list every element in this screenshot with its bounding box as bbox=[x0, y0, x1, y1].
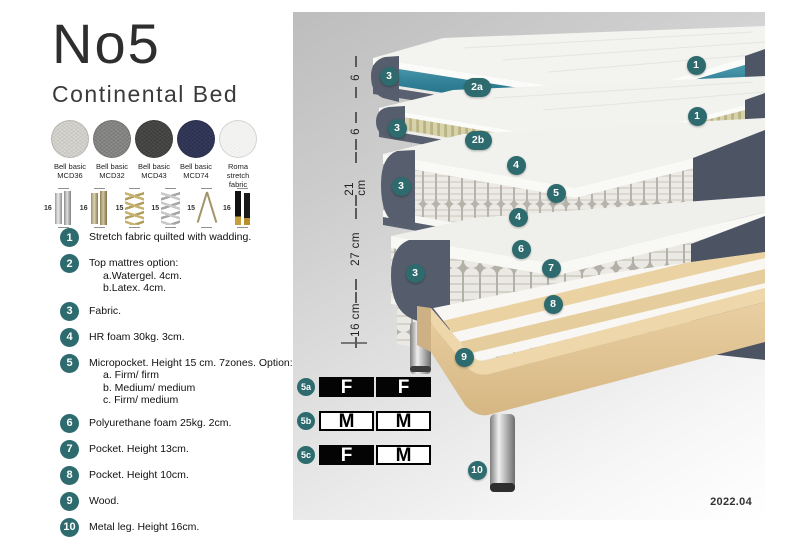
fabric-swatch-label: Bell basicMCD43 bbox=[134, 162, 174, 180]
fabric-swatch-circle bbox=[93, 120, 131, 158]
fabric-swatch-circle bbox=[135, 120, 173, 158]
fabric-swatch-name: Bell basic bbox=[134, 162, 174, 171]
legend-item: 8Pocket. Height 10cm. bbox=[60, 469, 293, 485]
leg-option: 16 bbox=[44, 186, 73, 230]
firmness-cell: F bbox=[319, 377, 374, 397]
callout-1: 1 bbox=[687, 56, 706, 75]
measure-dash bbox=[129, 227, 140, 228]
measure-dash bbox=[165, 227, 176, 228]
twist-gold-leg-icon bbox=[125, 191, 144, 225]
firmness-cell: M bbox=[376, 445, 431, 465]
fabric-swatch-name: Bell basic bbox=[92, 162, 132, 171]
firmness-cells: FM bbox=[319, 445, 431, 465]
dimension-segment: 6 bbox=[345, 112, 367, 150]
measure-dash bbox=[94, 227, 105, 228]
dimension-label: 6 bbox=[350, 74, 362, 81]
fabric-swatch-circle bbox=[177, 120, 215, 158]
callout-3: 3 bbox=[380, 67, 399, 86]
legend-line: Pocket. Height 13cm. bbox=[89, 443, 189, 456]
leg-option: 15 bbox=[116, 186, 145, 230]
legend-line: HR foam 30kg. 3cm. bbox=[89, 331, 185, 344]
product-subtitle: Continental Bed bbox=[52, 81, 238, 108]
legend-line: b.Latex. 4cm. bbox=[103, 282, 182, 295]
cylinder-silver-leg-icon bbox=[54, 191, 73, 225]
legend-text: Metal leg. Height 16cm. bbox=[89, 521, 199, 537]
dimension-segment: 27 cm bbox=[345, 208, 367, 290]
callout-3: 3 bbox=[406, 264, 425, 283]
legend-line: Wood. bbox=[89, 495, 119, 508]
firmness-row: 5bMM bbox=[297, 411, 431, 431]
callout-4: 4 bbox=[509, 208, 528, 227]
ruler-tick bbox=[355, 112, 357, 123]
ruler-tick bbox=[355, 279, 357, 290]
callout-1: 1 bbox=[688, 107, 707, 126]
fabric-swatch-code: MCD43 bbox=[134, 171, 174, 180]
legend-line: Fabric. bbox=[89, 305, 121, 318]
leg-option: 15 bbox=[151, 186, 180, 230]
legend-number: 1 bbox=[60, 228, 79, 247]
callout-10: 10 bbox=[468, 461, 487, 480]
leg-option: 16 bbox=[223, 186, 252, 230]
legend-text: HR foam 30kg. 3cm. bbox=[89, 331, 185, 347]
fabric-swatch-name: Bell basic bbox=[50, 162, 90, 171]
diagram-panel: 2022.04 12a312b3453467389106621 cm27 cm1… bbox=[293, 12, 765, 520]
fabric-swatch-code: MCD32 bbox=[92, 171, 132, 180]
firmness-row: 5cFM bbox=[297, 445, 431, 465]
legend-number: 9 bbox=[60, 492, 79, 511]
fabric-swatch-circle bbox=[51, 120, 89, 158]
legend-text: Pocket. Height 13cm. bbox=[89, 443, 189, 459]
brand-block: No5 Continental Bed bbox=[52, 16, 238, 108]
firmness-cell: M bbox=[376, 411, 431, 431]
legend-text: Wood. bbox=[89, 495, 119, 511]
version-label: 2022.04 bbox=[710, 496, 752, 508]
product-title: No5 bbox=[52, 16, 238, 72]
firmness-row-label: 5b bbox=[297, 412, 315, 430]
leg-figure bbox=[197, 186, 216, 230]
legend-line: Metal leg. Height 16cm. bbox=[89, 521, 199, 534]
measure-dash bbox=[237, 227, 248, 228]
block-black-leg-icon bbox=[233, 191, 252, 225]
callout-6: 6 bbox=[512, 240, 531, 259]
ruler-tick bbox=[355, 208, 357, 219]
legend-number: 5 bbox=[60, 354, 79, 373]
legend-text: Micropocket. Height 15 cm. 7zones. Optio… bbox=[89, 357, 293, 407]
legend-line: Micropocket. Height 15 cm. 7zones. Optio… bbox=[89, 357, 293, 370]
fabric-swatch: Bell basicMCD32 bbox=[92, 120, 132, 189]
legend-item: 6Polyurethane foam 25kg. 2cm. bbox=[60, 417, 293, 433]
legend-line: Pocket. Height 10cm. bbox=[89, 469, 189, 482]
firmness-cell: F bbox=[319, 445, 374, 465]
legend-item: 9Wood. bbox=[60, 495, 293, 511]
metal-leg-front bbox=[490, 414, 515, 492]
legend-line: c. Firm/ medium bbox=[103, 394, 293, 407]
legend-line: Top mattres option: bbox=[89, 257, 182, 270]
fabric-swatch-code: MCD36 bbox=[50, 171, 90, 180]
twist-silver-leg-icon bbox=[161, 191, 180, 225]
firmness-cell: F bbox=[376, 377, 431, 397]
measure-dash bbox=[201, 188, 212, 189]
measure-dash bbox=[237, 188, 248, 189]
ruler-tick bbox=[355, 337, 357, 348]
legend-text: Fabric. bbox=[89, 305, 121, 321]
ruler-tick bbox=[355, 292, 357, 303]
legend-list: 1Stretch fabric quilted with wadding.2To… bbox=[60, 231, 293, 547]
fabric-swatch-code: MCD74 bbox=[176, 171, 216, 180]
callout-9: 9 bbox=[455, 348, 474, 367]
leg-figure bbox=[90, 186, 109, 230]
callout-2b: 2b bbox=[465, 131, 492, 150]
legend-line: a. Firm/ firm bbox=[103, 369, 293, 382]
legend-line: Polyurethane foam 25kg. 2cm. bbox=[89, 417, 231, 430]
measure-dash bbox=[58, 188, 69, 189]
legend-item: 2Top mattres option:a.Watergel. 4cm.b.La… bbox=[60, 257, 293, 295]
callout-2a: 2a bbox=[464, 78, 491, 97]
dimension-label: 6 bbox=[350, 128, 362, 135]
legend-text: Top mattres option:a.Watergel. 4cm.b.Lat… bbox=[89, 257, 182, 295]
legend-item: 5Micropocket. Height 15 cm. 7zones. Opti… bbox=[60, 357, 293, 407]
legend-number: 10 bbox=[60, 518, 79, 537]
legend-number: 4 bbox=[60, 328, 79, 347]
firmness-cell: M bbox=[319, 411, 374, 431]
dimension-label: 21 cm bbox=[344, 163, 368, 196]
fabric-swatch-circle bbox=[219, 120, 257, 158]
legend-item: 1Stretch fabric quilted with wadding. bbox=[60, 231, 293, 247]
fabric-swatch: Bell basicMCD74 bbox=[176, 120, 216, 189]
fabric-swatch-name: Roma bbox=[218, 162, 258, 171]
legend-number: 2 bbox=[60, 254, 79, 273]
ruler-tick bbox=[355, 195, 357, 206]
info-column: No5 Continental Bed Bell basicMCD36Bell … bbox=[0, 0, 293, 533]
firmness-row-label: 5c bbox=[297, 446, 315, 464]
page: No5 Continental Bed Bell basicMCD36Bell … bbox=[0, 0, 800, 533]
cylinder-gold-leg-icon bbox=[90, 191, 109, 225]
ruler-tick bbox=[355, 139, 357, 150]
legend-item: 4HR foam 30kg. 3cm. bbox=[60, 331, 293, 347]
firmness-row-label: 5a bbox=[297, 378, 315, 396]
leg-figure bbox=[125, 186, 144, 230]
measure-dash bbox=[129, 188, 140, 189]
callout-3: 3 bbox=[392, 177, 411, 196]
measure-dash bbox=[165, 188, 176, 189]
fabric-swatch: Romastretch fabric bbox=[218, 120, 258, 189]
measure-dash bbox=[201, 227, 212, 228]
legend-item: 10Metal leg. Height 16cm. bbox=[60, 521, 293, 537]
fabric-swatch-label: Romastretch fabric bbox=[218, 162, 258, 189]
leg-height-label: 16 bbox=[80, 205, 88, 212]
ruler-tick bbox=[355, 152, 357, 163]
legend-text: Polyurethane foam 25kg. 2cm. bbox=[89, 417, 231, 433]
firmness-cells: FF bbox=[319, 377, 431, 397]
dimension-label: 16 cm bbox=[350, 303, 362, 337]
legend-number: 8 bbox=[60, 466, 79, 485]
callout-3: 3 bbox=[388, 119, 407, 138]
legend-item: 7Pocket. Height 13cm. bbox=[60, 443, 293, 459]
leg-figure bbox=[54, 186, 73, 230]
callout-4: 4 bbox=[507, 156, 526, 175]
fabric-swatch-name: Bell basic bbox=[176, 162, 216, 171]
leg-figure bbox=[233, 186, 252, 230]
callout-8: 8 bbox=[544, 295, 563, 314]
leg-height-label: 15 bbox=[116, 205, 124, 212]
hairpin-leg-icon bbox=[197, 191, 216, 225]
legend-number: 6 bbox=[60, 414, 79, 433]
legend-line: Stretch fabric quilted with wadding. bbox=[89, 231, 251, 244]
ruler-tick bbox=[355, 87, 357, 98]
legend-line: b. Medium/ medium bbox=[103, 382, 293, 395]
legend-number: 7 bbox=[60, 440, 79, 459]
leg-option: 15 bbox=[187, 186, 216, 230]
leg-option: 16 bbox=[80, 186, 109, 230]
legend-line: a.Watergel. 4cm. bbox=[103, 270, 182, 283]
dimension-segment: 6 bbox=[345, 56, 367, 98]
legend-text: Pocket. Height 10cm. bbox=[89, 469, 189, 485]
fabric-swatch-label: Bell basicMCD32 bbox=[92, 162, 132, 180]
firmness-cells: MM bbox=[319, 411, 431, 431]
dimension-label: 27 cm bbox=[350, 232, 362, 266]
leg-height-label: 15 bbox=[187, 205, 195, 212]
leg-height-label: 16 bbox=[44, 205, 52, 212]
legend-text: Stretch fabric quilted with wadding. bbox=[89, 231, 251, 247]
fabric-swatch-label: Bell basicMCD36 bbox=[50, 162, 90, 180]
legend-number: 3 bbox=[60, 302, 79, 321]
legend-item: 3Fabric. bbox=[60, 305, 293, 321]
fabric-swatch: Bell basicMCD36 bbox=[50, 120, 90, 189]
callout-5: 5 bbox=[547, 184, 566, 203]
leg-figure bbox=[161, 186, 180, 230]
fabric-swatch: Bell basicMCD43 bbox=[134, 120, 174, 189]
fabric-swatches: Bell basicMCD36Bell basicMCD32Bell basic… bbox=[50, 120, 258, 189]
firmness-row: 5aFF bbox=[297, 377, 431, 397]
leg-height-label: 15 bbox=[151, 205, 159, 212]
callout-7: 7 bbox=[542, 259, 561, 278]
ruler-tick bbox=[355, 56, 357, 67]
measure-dash bbox=[94, 188, 105, 189]
leg-options: 161615151516 bbox=[44, 186, 252, 230]
fabric-swatch-label: Bell basicMCD74 bbox=[176, 162, 216, 180]
dimension-segment: 21 cm bbox=[345, 152, 367, 206]
leg-height-label: 16 bbox=[223, 205, 231, 212]
dimension-segment: 16 cm bbox=[345, 292, 367, 348]
